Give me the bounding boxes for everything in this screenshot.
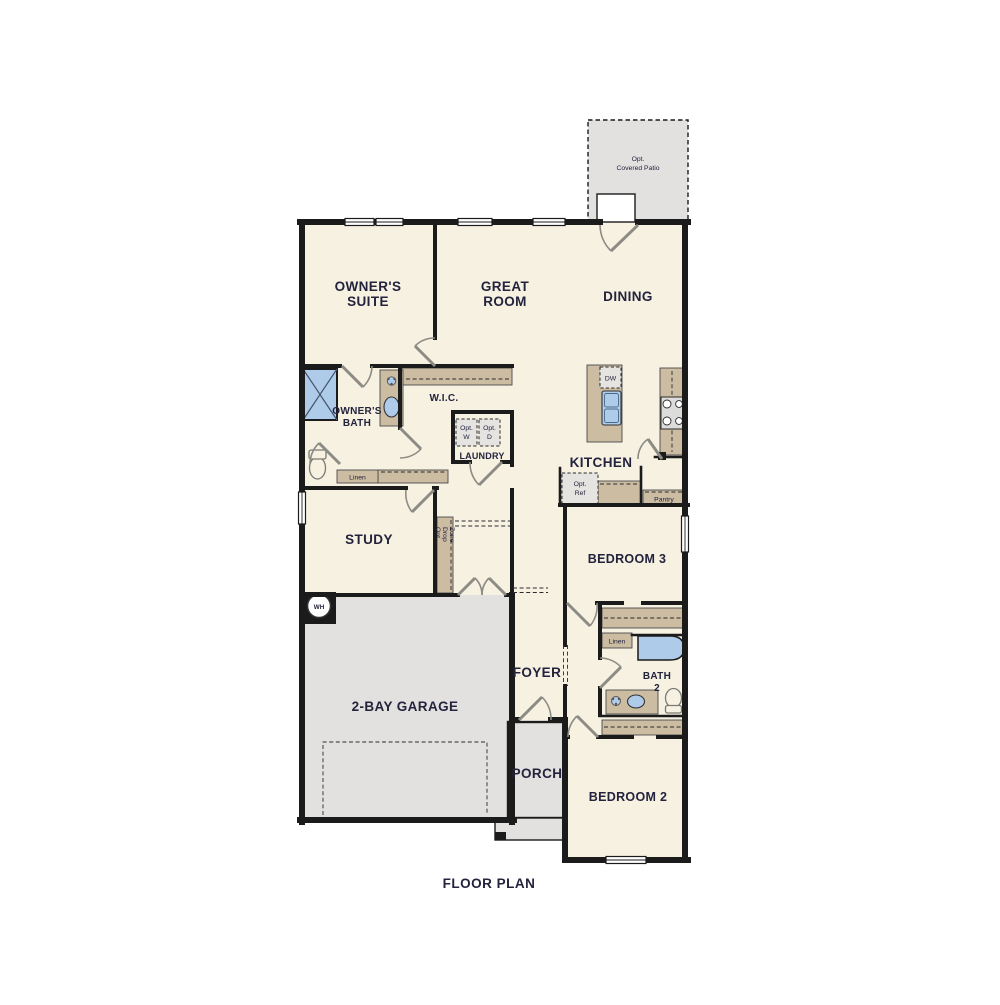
- bedroom2-closet-shelf: [602, 720, 685, 735]
- owners-bath-label-line2: BATH: [343, 418, 371, 429]
- island-sink: [602, 391, 621, 425]
- wic-label: W.I.C.: [429, 393, 458, 404]
- drop-zone-label-line1: Opt.: [434, 527, 441, 540]
- foyer-label: FOYER: [513, 665, 562, 680]
- kitchen-label: KITCHEN: [570, 455, 633, 470]
- kitchen-bottom-counter: [598, 481, 641, 505]
- bath2-label-line1: BATH: [643, 671, 671, 682]
- window-bedroom2: [606, 857, 646, 864]
- window-bedroom3: [682, 516, 689, 552]
- window-owners-suite-1: [345, 219, 374, 226]
- optional-washer-box: [456, 419, 477, 446]
- drop-zone-label-line2: Drop: [441, 527, 448, 542]
- study-label: STUDY: [345, 532, 393, 547]
- opt-washer-label-line1: Opt.: [460, 425, 473, 432]
- dining-label: DINING: [603, 289, 653, 304]
- owners-suite-label-line1: OWNER'S: [335, 279, 402, 294]
- owners-bath-label-line1: OWNER'S: [332, 406, 382, 417]
- window-great-room-2: [533, 219, 565, 226]
- floor-plan-page: WH: [0, 0, 1000, 1000]
- patio-label-line1: Opt.: [632, 156, 645, 163]
- patio-label-line2: Covered Patio: [616, 165, 659, 172]
- bedroom2-label: BEDROOM 2: [589, 790, 667, 804]
- optional-refrigerator-box: [562, 473, 598, 504]
- plan-title: FLOOR PLAN: [443, 876, 536, 891]
- window-owners-suite-2: [376, 219, 403, 226]
- bathtub: [638, 636, 684, 660]
- great-room-label-line1: GREAT: [481, 279, 530, 294]
- range-cooktop: [661, 397, 684, 429]
- drop-zone-label-line3: Zone: [448, 527, 455, 543]
- linen-owners-bath-label: Linen: [349, 475, 366, 482]
- dishwasher-label: DW: [605, 376, 617, 383]
- opt-dryer-label-line2: D: [487, 434, 492, 441]
- water-heater-label: WH: [314, 604, 325, 611]
- opt-ref-label-line1: Opt.: [574, 481, 587, 488]
- window-study: [299, 492, 306, 524]
- porch-corner-post: [495, 832, 506, 840]
- porch-label: PORCH: [512, 766, 563, 781]
- foyer-area: [512, 505, 565, 720]
- window-great-room-1: [458, 219, 492, 226]
- opt-dryer-label-line1: Opt.: [483, 425, 496, 432]
- linen-hall-label: Linen: [609, 639, 626, 646]
- pantry-label: Pantry: [654, 497, 674, 504]
- optional-dryer-box: [479, 419, 500, 446]
- bedroom3-label: BEDROOM 3: [588, 552, 666, 566]
- opt-ref-label-line2: Ref: [575, 490, 586, 497]
- garage-label: 2-BAY GARAGE: [352, 699, 459, 714]
- floor-plan-drawing: WH: [0, 0, 1000, 1000]
- laundry-label: LAUNDRY: [459, 451, 504, 461]
- opt-washer-label-line2: W: [463, 434, 470, 441]
- great-room-label-line2: ROOM: [483, 294, 527, 309]
- bath2-label-line2: 2: [654, 683, 660, 694]
- toilet-bath2: [666, 689, 682, 714]
- wic-top-shelf: [402, 368, 512, 385]
- owners-suite-label-line2: SUITE: [347, 294, 389, 309]
- patio-pad: [597, 194, 635, 222]
